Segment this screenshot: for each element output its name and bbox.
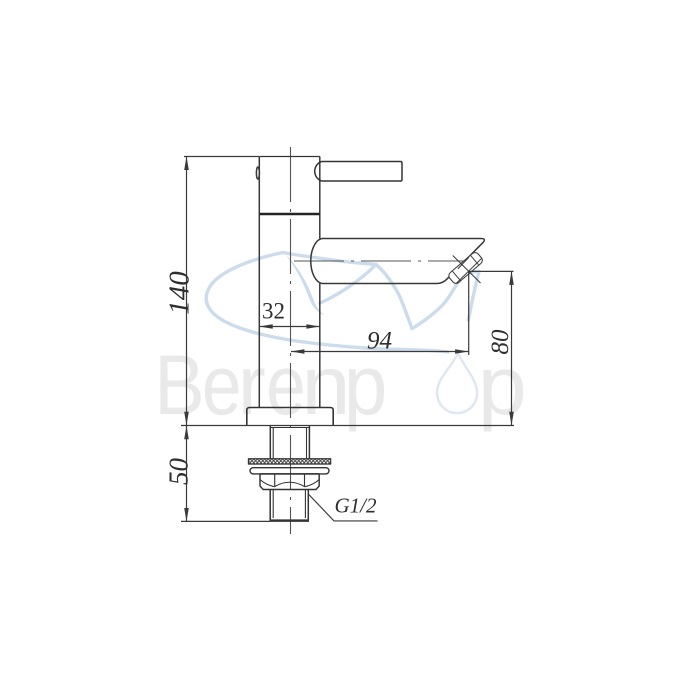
svg-text:94: 94 xyxy=(367,328,392,355)
svg-text:140: 140 xyxy=(164,271,196,315)
svg-text:r: r xyxy=(238,338,266,432)
svg-text:B: B xyxy=(154,338,204,432)
svg-text:80: 80 xyxy=(487,329,514,355)
svg-text:e: e xyxy=(202,337,242,432)
svg-text:G1/2: G1/2 xyxy=(335,494,378,518)
svg-text:50: 50 xyxy=(164,458,194,486)
svg-text:32: 32 xyxy=(262,299,285,324)
